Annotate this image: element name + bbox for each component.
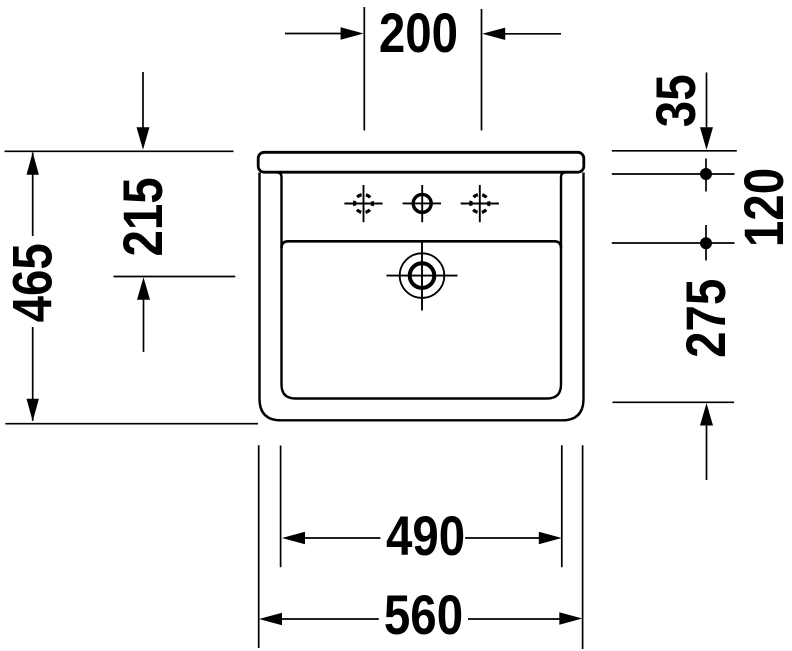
svg-text:490: 490 — [386, 505, 465, 567]
svg-text:35: 35 — [644, 74, 706, 127]
svg-text:560: 560 — [384, 583, 463, 645]
svg-text:120: 120 — [732, 168, 792, 247]
svg-text:275: 275 — [675, 279, 737, 358]
svg-text:215: 215 — [111, 177, 173, 256]
svg-text:200: 200 — [379, 1, 458, 63]
svg-text:465: 465 — [1, 243, 63, 322]
